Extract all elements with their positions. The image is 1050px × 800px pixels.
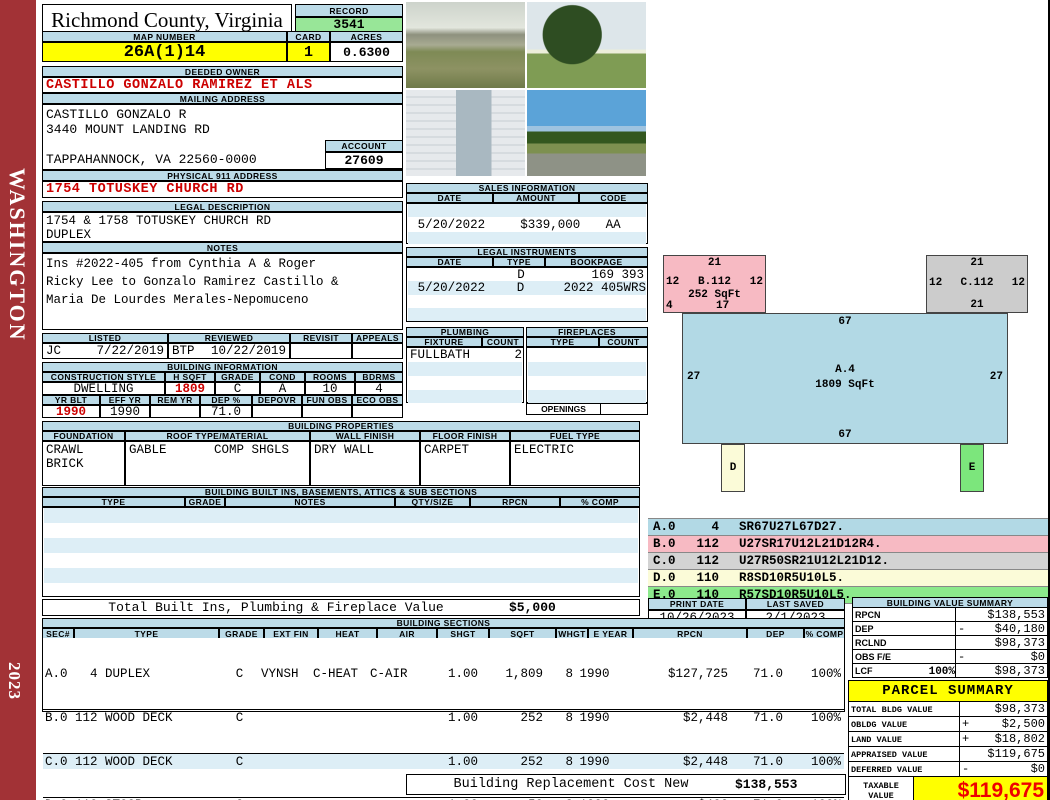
foundation-value: CRAWL BRICK — [42, 441, 125, 486]
last-saved-header: LAST SAVED — [746, 598, 845, 610]
li-bookpage-header: BOOKPAGE — [545, 257, 648, 267]
foundation-line: CRAWL — [46, 443, 121, 457]
built-ins-total-label: Total Built Ins, Plumbing & Fireplace Va… — [43, 600, 509, 615]
floor-finish-value: CARPET — [420, 441, 510, 486]
built-ins-qty-header: QTY/SIZE — [395, 497, 470, 507]
bs-cell: 1990 — [573, 711, 616, 725]
fixture-count-header: COUNT — [482, 337, 524, 347]
acres-value: 0.6300 — [330, 42, 403, 62]
sketch-section-sqft: 252 SqFt — [664, 289, 765, 301]
taxable-value: $119,675 — [914, 777, 1047, 800]
legal-instrument-row: 5/20/2022 D 2022 405WRS — [408, 281, 646, 295]
taxable-value-label: TAXABLE VALUE — [849, 777, 914, 800]
roof-header: ROOF TYPE/MATERIAL — [125, 431, 310, 441]
legend-id: B.0 — [648, 537, 691, 551]
bs-cell: C — [218, 755, 261, 769]
bs-cell: 112 WOOD DECK — [75, 711, 218, 725]
sale-date: 5/20/2022 — [408, 218, 495, 232]
ps-value: $18,802 — [995, 732, 1045, 746]
ps-row: TOTAL BLDG VALUE $98,373 — [849, 702, 1047, 716]
bvs-value: $138,553 — [987, 608, 1045, 621]
bs-cell: C-AIR — [370, 667, 428, 681]
construction-style-value: DWELLING — [42, 382, 165, 395]
bs-cell: 100% — [783, 711, 844, 725]
effyr-header: EFF YR — [100, 395, 150, 405]
listed-header: LISTED — [42, 333, 168, 343]
bvs-value: $98,373 — [995, 636, 1045, 649]
record-header: RECORD — [295, 4, 403, 17]
sales-date-header: DATE — [406, 193, 493, 203]
sketch-section-c: 21 12 C.112 12 21 — [926, 255, 1028, 313]
reviewed-date: 10/22/2019 — [211, 344, 286, 358]
fuel-type-value: ELECTRIC — [510, 441, 640, 486]
rooms-value: 10 — [305, 382, 355, 395]
legal-instrument-row: D 169 393 — [408, 268, 646, 281]
fireplaces-title: FIREPLACES — [526, 327, 648, 337]
legend-trace: SR67U27L67D27. — [739, 520, 844, 534]
sketch-dim: 4 — [666, 300, 673, 312]
notes-box: Ins #2022-405 from Cynthia A & Roger Ric… — [42, 253, 403, 330]
ps-label: LAND VALUE — [849, 732, 960, 746]
ps-value: $119,675 — [987, 747, 1045, 761]
hsqft-value: 1809 — [165, 382, 215, 395]
bs-cell: 1.00 — [428, 711, 478, 725]
ps-label: DEFERRED VALUE — [849, 762, 960, 776]
deeded-owner-header: DEEDED OWNER — [42, 66, 403, 77]
bs-cell: 100% — [783, 667, 844, 681]
building-sections-title: BUILDING SECTIONS — [42, 618, 845, 628]
print-date-header: PRINT DATE — [648, 598, 746, 610]
fireplace-type-header: TYPE — [526, 337, 599, 347]
bs-cell: C-HEAT — [313, 667, 370, 681]
taxable-label-line: VALUE — [868, 791, 894, 800]
replacement-cost-row: Building Replacement Cost New $138,553 — [406, 774, 846, 795]
bs-cell: 8 — [543, 667, 573, 681]
plumbing-title: PLUMBING — [406, 327, 524, 337]
reviewed-value: BTP 10/22/2019 — [168, 343, 290, 359]
bvs-label: RCLND — [855, 638, 887, 649]
openings-row: OPENINGS — [526, 403, 648, 415]
map-number-value: 26A(1)14 — [42, 42, 287, 62]
bvs-row: OBS F/E -$0 — [853, 649, 1047, 663]
ps-label: APPRAISED VALUE — [849, 747, 960, 761]
sketch-dim: 67 — [683, 429, 1007, 441]
building-sketch: 21 12 B.112 12 252 SqFt 4 17 21 12 C.112… — [648, 245, 1048, 518]
remyr-value — [150, 405, 200, 418]
notes-header: NOTES — [42, 242, 403, 253]
record-value: 3541 — [295, 17, 403, 32]
county-title: Richmond County, Virginia — [43, 8, 291, 33]
revisit-header: REVISIT — [290, 333, 352, 343]
fireplaces-rows — [526, 347, 648, 403]
li-type: D — [495, 281, 547, 295]
sketch-section-b: 21 12 B.112 12 252 SqFt 4 17 — [663, 255, 766, 313]
ps-sign: + — [962, 717, 969, 731]
legal-description-line: DUPLEX — [46, 228, 399, 242]
grade-value: C — [215, 382, 260, 395]
legend-row: C.0 112 U27R50SR21U12L21D12. — [648, 552, 1048, 569]
district-sidebar: WASHINGTON 2023 — [0, 0, 36, 800]
foundation-header: FOUNDATION — [42, 431, 125, 441]
bvs-sign: - — [958, 650, 965, 663]
bvs-value: $98,373 — [995, 664, 1045, 677]
sales-code-header: CODE — [579, 193, 648, 203]
legend-trace: U27SR17U12L21D12R4. — [739, 537, 882, 551]
bvs-row: DEP -$40,180 — [853, 621, 1047, 635]
roof-material: COMP SHGLS — [214, 443, 289, 457]
deeded-owner-value: CASTILLO GONZALO RAMIREZ ET ALS — [42, 77, 403, 93]
bs-cell: 71.0 — [728, 667, 783, 681]
note-line: Maria De Lourdes Merales-Nepomuceno — [46, 293, 399, 311]
bs-cell: C — [218, 711, 261, 725]
reviewed-header: REVIEWED — [168, 333, 290, 343]
listed-value: JC 7/22/2019 — [42, 343, 168, 359]
openings-label: OPENINGS — [527, 404, 601, 414]
bs-cell: C — [218, 667, 261, 681]
li-type-header: TYPE — [493, 257, 545, 267]
account-header: ACCOUNT — [325, 140, 403, 152]
cond-value: A — [260, 382, 305, 395]
building-section-row: B.0112 WOOD DECKC1.0025281990$2,44871.01… — [43, 709, 844, 725]
yrblt-header: YR BLT — [42, 395, 100, 405]
sketch-section-d: D — [721, 444, 745, 492]
plumbing-count: 2 — [486, 348, 522, 362]
li-type: D — [495, 268, 547, 282]
sale-code: AA — [580, 218, 646, 232]
parcel-summary: PARCEL SUMMARY TOTAL BLDG VALUE $98,373 … — [848, 680, 1048, 800]
legend-id: D.0 — [648, 571, 691, 585]
sketch-dim: 21 — [664, 257, 765, 269]
listed-by: JC — [46, 344, 61, 358]
account-value: 27609 — [325, 152, 403, 169]
sales-rows: 5/20/2022 $339,000 AA — [406, 203, 648, 244]
sketch-dim: 21 — [927, 257, 1027, 269]
bvs-label: LCF — [855, 666, 873, 677]
rooms-header: ROOMS — [305, 372, 355, 382]
replacement-cost-label: Building Replacement Cost New — [407, 777, 735, 792]
appeals-header: APPEALS — [352, 333, 403, 343]
bs-cell: 252 — [478, 711, 543, 725]
ps-row: OBLDG VALUE +$2,500 — [849, 716, 1047, 731]
legend-row: D.0 110 R8SD10R5U10L5. — [648, 569, 1048, 586]
ps-row: APPRAISED VALUE $119,675 — [849, 746, 1047, 761]
bs-cell: 71.0 — [728, 711, 783, 725]
ps-sign: + — [962, 732, 969, 746]
building-section-row: C.0112 WOOD DECKC1.0025281990$2,44871.01… — [43, 753, 844, 769]
plumbing-fixture: FULLBATH — [408, 348, 486, 362]
legend-code: 112 — [691, 554, 719, 568]
replacement-cost-value: $138,553 — [735, 777, 845, 792]
bs-cell: 4 DUPLEX — [75, 667, 218, 681]
bs-cell: 1.00 — [428, 667, 478, 681]
bs-cell: 252 — [478, 755, 543, 769]
sale-amount: $339,000 — [495, 218, 581, 232]
bdrms-value: 4 — [355, 382, 403, 395]
ecoobs-header: ECO OBS — [352, 395, 403, 405]
building-value-summary-table: RPCN $138,553 DEP -$40,180 RCLND $98,373… — [852, 608, 1048, 678]
legend-id: C.0 — [648, 554, 691, 568]
bvs-value: $40,180 — [995, 622, 1045, 635]
ps-label: OBLDG VALUE — [849, 717, 960, 731]
physical-address-header: PHYSICAL 911 ADDRESS — [42, 170, 403, 181]
acres-header: ACRES — [330, 31, 403, 42]
note-line: Ricky Lee to Gonzalo Ramirez Castillo & — [46, 275, 399, 293]
legal-description-box: 1754 & 1758 TOTUSKEY CHURCH RD DUPLEX — [42, 212, 403, 242]
ps-label: TOTAL BLDG VALUE — [849, 702, 960, 716]
legend-code: 4 — [691, 520, 719, 534]
ecoobs-value — [352, 405, 403, 418]
li-bookpage: 2022 405WRS — [546, 281, 646, 295]
legal-description-line: 1754 & 1758 TOTUSKEY CHURCH RD — [46, 214, 399, 228]
bs-cell: 1990 — [573, 667, 616, 681]
sketch-dim: 27 — [990, 371, 1003, 383]
ps-value: $0 — [1031, 762, 1045, 776]
bs-cell: C.0 — [43, 755, 75, 769]
building-value-summary-title: BUILDING VALUE SUMMARY — [852, 597, 1048, 608]
roof-value: GABLE COMP SHGLS — [125, 441, 310, 486]
legend-code: 112 — [691, 537, 719, 551]
cond-header: COND — [260, 372, 305, 382]
li-date: 5/20/2022 — [408, 281, 495, 295]
hsqft-header: H SQFT — [165, 372, 215, 382]
bvs-value: $0 — [1031, 650, 1045, 663]
mailing-address-header: MAILING ADDRESS — [42, 93, 403, 104]
sketch-dim: 12 — [750, 276, 763, 288]
bs-cell: 1,809 — [478, 667, 543, 681]
legal-instruments-rows: D 169 393 5/20/2022 D 2022 405WRS — [406, 267, 648, 322]
bs-cell: $2,448 — [616, 755, 728, 769]
ps-value: $98,373 — [995, 702, 1045, 716]
built-ins-type-header: TYPE — [42, 497, 185, 507]
bs-cell: 1.00 — [428, 755, 478, 769]
sketch-section-label: A.4 — [683, 364, 1007, 376]
building-information-title: BUILDING INFORMATION — [42, 362, 403, 372]
fixture-header: FIXTURE — [406, 337, 482, 347]
sales-amount-header: AMOUNT — [493, 193, 579, 203]
bvs-row: LCF100% $98,373 — [853, 663, 1047, 677]
bs-cell: VYNSH — [261, 667, 313, 681]
bs-cell: $2,448 — [616, 711, 728, 725]
sketch-dim: 21 — [927, 299, 1027, 311]
bs-cell: $127,725 — [616, 667, 728, 681]
note-line: Ins #2022-405 from Cynthia A & Roger — [46, 257, 399, 275]
card-header: CARD — [287, 31, 330, 42]
bvs-label: OBS F/E — [855, 652, 891, 663]
built-ins-notes-header: NOTES — [225, 497, 395, 507]
bs-cell: B.0 — [43, 711, 75, 725]
legend-id: A.0 — [648, 520, 691, 534]
remyr-header: REM YR — [150, 395, 200, 405]
yrblt-value: 1990 — [42, 405, 100, 418]
built-ins-title: BUILDING BUILT INS, BASEMENTS, ATTICS & … — [42, 487, 640, 497]
bs-cell: 1990 — [573, 755, 616, 769]
built-ins-grade-header: GRADE — [185, 497, 225, 507]
fuel-type-header: FUEL TYPE — [510, 431, 640, 441]
legend-row: A.0 4 SR67U27L67D27. — [648, 518, 1048, 535]
sketch-section-sqft: 1809 SqFt — [683, 379, 1007, 391]
taxable-value-row: TAXABLE VALUE $119,675 — [848, 777, 1048, 800]
building-properties-title: BUILDING PROPERTIES — [42, 421, 640, 431]
li-date-header: DATE — [406, 257, 493, 267]
legend-code: 110 — [691, 571, 719, 585]
legal-description-header: LEGAL DESCRIPTION — [42, 201, 403, 212]
parcel-summary-table: TOTAL BLDG VALUE $98,373 OBLDG VALUE +$2… — [848, 702, 1048, 777]
built-ins-empty-rows — [42, 507, 640, 597]
property-photo-yard-tree — [527, 2, 646, 88]
plumbing-rows: FULLBATH 2 — [406, 347, 524, 403]
sketch-section-label: D — [730, 462, 737, 474]
appeals-value — [352, 343, 403, 359]
ps-row: DEFERRED VALUE -$0 — [849, 761, 1047, 776]
wall-finish-header: WALL FINISH — [310, 431, 420, 441]
sales-information-title: SALES INFORMATION — [406, 183, 648, 193]
reviewed-by: BTP — [172, 344, 195, 358]
mailing-line: CASTILLO GONZALO R — [46, 107, 399, 122]
depovr-value — [252, 405, 302, 418]
construction-style-header: CONSTRUCTION STYLE — [42, 372, 165, 382]
listed-date: 7/22/2019 — [96, 344, 164, 358]
property-photo-front — [406, 2, 525, 88]
bs-cell: 100% — [783, 755, 844, 769]
li-bookpage: 169 393 — [547, 268, 644, 282]
parcel-summary-title: PARCEL SUMMARY — [848, 680, 1048, 702]
bs-cell: A.0 — [43, 667, 75, 681]
built-ins-total-row: Total Built Ins, Plumbing & Fireplace Va… — [42, 599, 640, 616]
bs-cell: 112 WOOD DECK — [75, 755, 218, 769]
wall-finish-value: DRY WALL — [310, 441, 420, 486]
funobs-header: FUN OBS — [302, 395, 352, 405]
bs-cell: 8 — [543, 711, 573, 725]
sketch-dim: 17 — [716, 300, 729, 312]
sketch-section-label: E — [969, 462, 976, 474]
taxable-label-line: TAXABLE — [863, 781, 899, 791]
effyr-value: 1990 — [100, 405, 150, 418]
legend-trace: R8SD10R5U10L5. — [739, 571, 844, 585]
bvs-pct: 100% — [929, 666, 955, 677]
bvs-label: RPCN — [855, 610, 881, 621]
physical-address-value: 1754 TOTUSKEY CHURCH RD — [42, 181, 403, 198]
sketch-dim: 12 — [1012, 277, 1025, 289]
built-ins-comp-header: % COMP — [560, 497, 640, 507]
built-ins-rpcn-header: RPCN — [470, 497, 560, 507]
depovr-header: DEPOVR — [252, 395, 302, 405]
ps-value: $2,500 — [1002, 717, 1045, 731]
sketch-dim: 67 — [683, 316, 1007, 328]
bdrms-header: BDRMS — [355, 372, 403, 382]
revisit-value — [290, 343, 352, 359]
bvs-sign: - — [958, 622, 965, 635]
roof-type: GABLE — [129, 443, 167, 457]
bs-cell: 71.0 — [728, 755, 783, 769]
built-ins-total-value: $5,000 — [509, 600, 639, 615]
map-number-header: MAP NUMBER — [42, 31, 287, 42]
mailing-line: 3440 MOUNT LANDING RD — [46, 122, 399, 137]
property-record-card: WASHINGTON 2023 Richmond County, Virgini… — [0, 0, 1050, 800]
tax-year-label: 2023 — [4, 662, 24, 700]
plumbing-row: FULLBATH 2 — [408, 348, 522, 362]
dep-pct-header: DEP % — [200, 395, 252, 405]
sketch-section-e: E — [960, 444, 984, 492]
legal-instruments-title: LEGAL INSTRUMENTS — [406, 247, 648, 257]
bs-cell: 8 — [543, 755, 573, 769]
building-sections-rows: A.0 4 DUPLEXCVYNSHC-HEATC-AIR1.001,80981… — [42, 638, 845, 712]
foundation-line: BRICK — [46, 457, 121, 471]
building-section-row: A.0 4 DUPLEXCVYNSHC-HEATC-AIR1.001,80981… — [43, 666, 844, 681]
grade-header: GRADE — [215, 372, 260, 382]
card-value: 1 — [287, 42, 330, 62]
property-photo-entry-door — [406, 90, 525, 176]
bvs-row: RCLND $98,373 — [853, 635, 1047, 649]
district-label: WASHINGTON — [4, 168, 30, 342]
bvs-label: DEP — [855, 624, 874, 635]
floor-finish-header: FLOOR FINISH — [420, 431, 510, 441]
legend-row: B.0 112 U27SR17U12L21D12R4. — [648, 535, 1048, 552]
dep-pct-value: 71.0 — [200, 405, 252, 418]
bvs-row: RPCN $138,553 — [853, 608, 1047, 621]
property-photo-street-view — [527, 90, 646, 176]
fireplace-count-header: COUNT — [599, 337, 648, 347]
ps-sign: - — [962, 762, 969, 776]
funobs-value — [302, 405, 352, 418]
sketch-section-a: 67 27 A.4 1809 SqFt 27 67 — [682, 313, 1008, 444]
legend-trace: U27R50SR21U12L21D12. — [739, 554, 889, 568]
sales-row: 5/20/2022 $339,000 AA — [408, 217, 646, 232]
ps-row: LAND VALUE +$18,802 — [849, 731, 1047, 746]
sketch-legend: A.0 4 SR67U27L67D27. B.0 112 U27SR17U12L… — [648, 518, 1048, 604]
